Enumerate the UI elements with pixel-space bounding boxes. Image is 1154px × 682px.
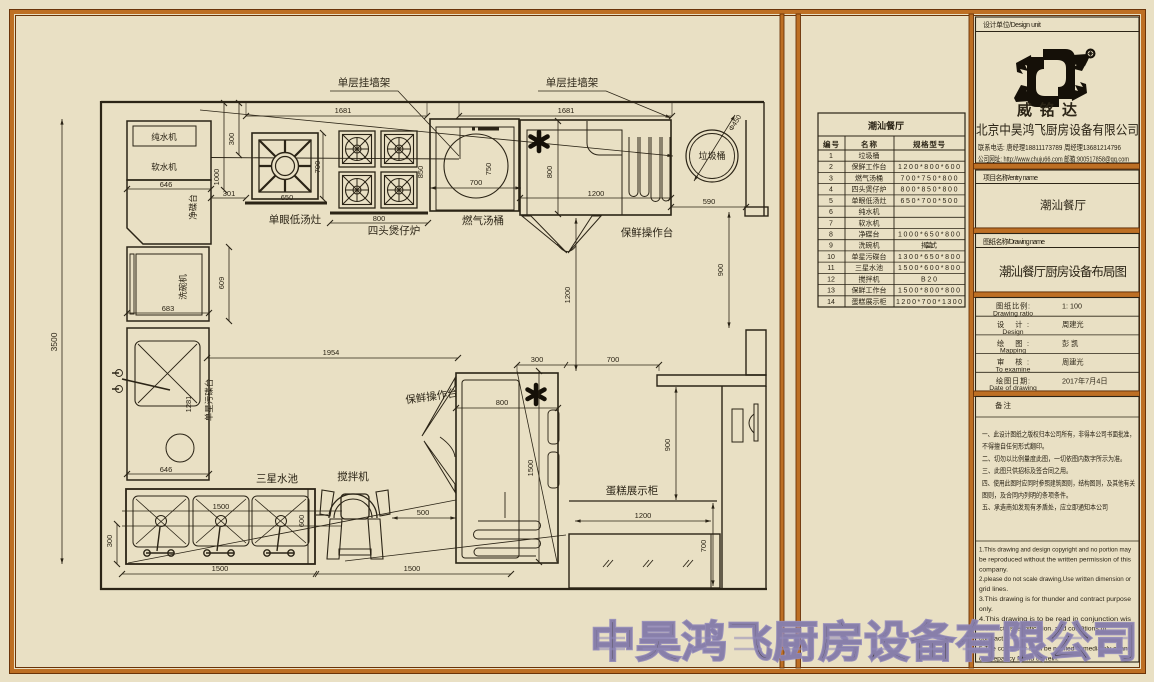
svg-text:揭盖式: 揭盖式 [921,241,937,250]
svg-text:五、承造商如发现有矛盾处，应立即通知本公司: 五、承造商如发现有矛盾处，应立即通知本公司 [982,503,1108,512]
svg-text:单星污碟台: 单星污碟台 [204,379,214,422]
svg-text:2: 2 [829,164,833,171]
svg-text:软水机: 软水机 [151,162,177,172]
svg-text:646: 646 [160,465,173,474]
svg-text:800: 800 [496,398,509,407]
svg-text:700*750*800: 700*750*800 [901,175,958,182]
svg-text:500: 500 [417,508,430,517]
svg-text:周建光: 周建光 [1062,358,1084,367]
svg-text:威铭达: 威铭达 [1017,101,1077,119]
svg-text:3: 3 [829,175,833,182]
svg-text:图则，及合同内列明的条项条件。: 图则，及合同内列明的条项条件。 [982,491,1072,500]
svg-text:9: 9 [829,243,833,250]
svg-text:燃气汤桶: 燃气汤桶 [462,214,504,227]
svg-text:1200*800*600: 1200*800*600 [898,164,960,171]
svg-text:10: 10 [827,254,835,261]
svg-text:300: 300 [227,133,236,146]
svg-text:1500: 1500 [212,564,229,573]
svg-text:设计单位/Design unit: 设计单位/Design unit [983,20,1041,29]
svg-text:300: 300 [105,535,114,548]
svg-text:1500*800*800: 1500*800*800 [898,288,960,295]
svg-text:2.please do not scale drawing,: 2.please do not scale drawing,Use writte… [979,576,1132,583]
svg-text:14: 14 [827,299,835,306]
svg-text:一、此设计图纸之版权归本公司所有，非得本公司书面批准，: 一、此设计图纸之版权归本公司所有，非得本公司书面批准， [982,430,1135,439]
svg-text:公司网址: http://www.chuju66.com 邮: 公司网址: http://www.chuju66.com 邮箱:90051785… [978,155,1129,164]
svg-text:单眼低汤灶: 单眼低汤灶 [852,196,887,205]
svg-text:软水机: 软水机 [859,218,880,227]
svg-text:洗碗机: 洗碗机 [178,274,188,300]
svg-text:7: 7 [829,220,833,227]
svg-text:1954: 1954 [323,348,340,357]
svg-text:潮汕餐厅: 潮汕餐厅 [868,120,904,131]
svg-text:单眼低汤灶: 单眼低汤灶 [269,213,322,226]
svg-text:联系电话: 唐经理18811173789 周经理136: 联系电话: 唐经理18811173789 周经理13681214796 [978,143,1121,152]
svg-text:纯水机: 纯水机 [151,132,177,142]
svg-text:300: 300 [531,355,544,364]
svg-text:800*850*800: 800*850*800 [901,187,958,194]
svg-text:3.This drawing is for thunder: 3.This drawing is for thunder and contra… [979,596,1131,603]
svg-text:三星水池: 三星水池 [855,263,883,272]
svg-text:不得擅自任何形式翻印。: 不得擅自任何形式翻印。 [982,442,1048,451]
svg-text:1300*650*800: 1300*650*800 [898,254,960,261]
svg-text:中昊鸿飞厨房设备有限公司: 中昊鸿飞厨房设备有限公司 [590,619,1138,667]
svg-text:company.: company. [979,566,1008,573]
svg-text:净碟台: 净碟台 [859,230,880,239]
svg-text:图纸名称/Drawing name: 图纸名称/Drawing name [983,237,1045,246]
svg-text:燃气汤桶: 燃气汤桶 [855,173,883,182]
svg-text:683: 683 [162,304,175,313]
svg-text:名称: 名称 [861,139,878,149]
svg-text:1500: 1500 [526,460,535,477]
svg-text:750: 750 [484,163,493,176]
svg-text:850: 850 [416,166,425,179]
svg-text:1200: 1200 [563,287,572,304]
svg-text:保鲜工作台: 保鲜工作台 [852,162,887,171]
svg-text:图纸比例:: 图纸比例: [996,302,1030,311]
svg-text:600: 600 [297,515,306,528]
svg-text:三星水池: 三星水池 [256,472,298,485]
svg-text:650*700*500: 650*700*500 [901,198,958,205]
svg-text:潮汕餐厅: 潮汕餐厅 [1040,198,1086,212]
svg-text:彭 凯: 彭 凯 [1062,339,1078,348]
svg-text:4: 4 [829,187,833,194]
svg-text:绘图日期:: 绘图日期: [996,376,1030,385]
svg-text:周建光: 周建光 [1062,320,1084,329]
svg-text:1: 1 [829,153,833,160]
svg-text:1000: 1000 [212,169,221,186]
svg-text:1681: 1681 [335,106,352,115]
svg-text:700: 700 [699,540,708,553]
svg-text:301: 301 [223,189,236,198]
svg-text:纯水机: 纯水机 [859,207,880,216]
svg-text:700: 700 [607,355,620,364]
svg-text:1500: 1500 [404,564,421,573]
svg-text:四头煲仔炉: 四头煲仔炉 [368,224,421,237]
svg-text:洗碗机: 洗碗机 [859,241,880,250]
svg-text:规格型号: 规格型号 [913,139,946,149]
svg-text:四头煲仔炉: 四头煲仔炉 [852,185,887,194]
svg-text:1000*650*800: 1000*650*800 [898,232,960,239]
svg-text:1200*700*1300: 1200*700*1300 [896,299,962,306]
svg-text:646: 646 [160,180,173,189]
svg-text:搅拌机: 搅拌机 [859,274,880,283]
svg-text:B20: B20 [921,276,937,283]
svg-text:垃圾桶: 垃圾桶 [859,151,880,160]
svg-text:蛋糕展示柜: 蛋糕展示柜 [606,484,659,497]
svg-text:only.: only. [979,606,993,613]
svg-text:590: 590 [703,197,716,206]
svg-text:800: 800 [545,166,554,179]
svg-text:1.This drawing and design copy: 1.This drawing and design copyright and … [979,547,1132,554]
svg-text:2017年7月4日: 2017年7月4日 [1062,376,1108,385]
svg-text:900: 900 [663,439,672,452]
svg-text:潮汕餐厅厨房设备布局图: 潮汕餐厅厨房设备布局图 [999,264,1127,279]
svg-text:二、切勿以比例量度此图，一切依图内数字所示为准。: 二、切勿以比例量度此图，一切依图内数字所示为准。 [982,454,1126,463]
svg-text:11: 11 [827,265,834,272]
svg-text:900: 900 [716,264,725,277]
svg-text:grid lines.: grid lines. [979,586,1008,593]
svg-text:5: 5 [829,198,833,205]
svg-text:1681: 1681 [558,106,575,115]
svg-text:800: 800 [373,214,386,223]
svg-text:1500*600*800: 1500*600*800 [898,265,960,272]
svg-text:净碟台: 净碟台 [188,194,198,220]
svg-text:be reproduced without the writ: be reproduced without the written permis… [979,556,1132,563]
svg-text:蛋糕展示柜: 蛋糕展示柜 [852,297,887,306]
svg-text:700: 700 [470,178,483,187]
svg-text:单星污碟台: 单星污碟台 [852,252,887,261]
svg-text:609: 609 [217,277,226,290]
svg-text:12: 12 [827,276,835,283]
svg-text:3500: 3500 [49,332,59,351]
svg-text:8: 8 [829,232,833,239]
svg-text:1200: 1200 [635,511,652,520]
svg-text:备注: 备注 [995,400,1012,410]
svg-text:1200: 1200 [588,189,605,198]
svg-text:保鲜操作台: 保鲜操作台 [621,226,674,239]
svg-text:6: 6 [829,209,833,216]
svg-text:三、此图只供招标及签合同之用。: 三、此图只供招标及签合同之用。 [982,466,1072,475]
svg-text:1500: 1500 [213,502,230,511]
svg-text:北京中昊鸿飞厨房设备有限公司: 北京中昊鸿飞厨房设备有限公司 [976,123,1139,138]
svg-text:700: 700 [313,161,322,174]
svg-text:13: 13 [827,288,835,295]
svg-text:搅拌机: 搅拌机 [337,470,369,483]
svg-text:项目名称/entry name: 项目名称/entry name [983,173,1038,182]
svg-text:650: 650 [281,193,294,202]
svg-text:保鲜工作台: 保鲜工作台 [852,286,887,295]
svg-text:单层挂墙架: 单层挂墙架 [546,76,599,89]
svg-text:编号: 编号 [823,139,840,149]
svg-text:四、使用此图时应同时参照建筑图则，结构图则，及其他有关: 四、使用此图时应同时参照建筑图则，结构图则，及其他有关 [982,478,1135,487]
svg-text:1281: 1281 [184,396,193,413]
svg-text:单层挂墙架: 单层挂墙架 [338,76,391,89]
svg-text:1: 100: 1: 100 [1062,302,1082,311]
